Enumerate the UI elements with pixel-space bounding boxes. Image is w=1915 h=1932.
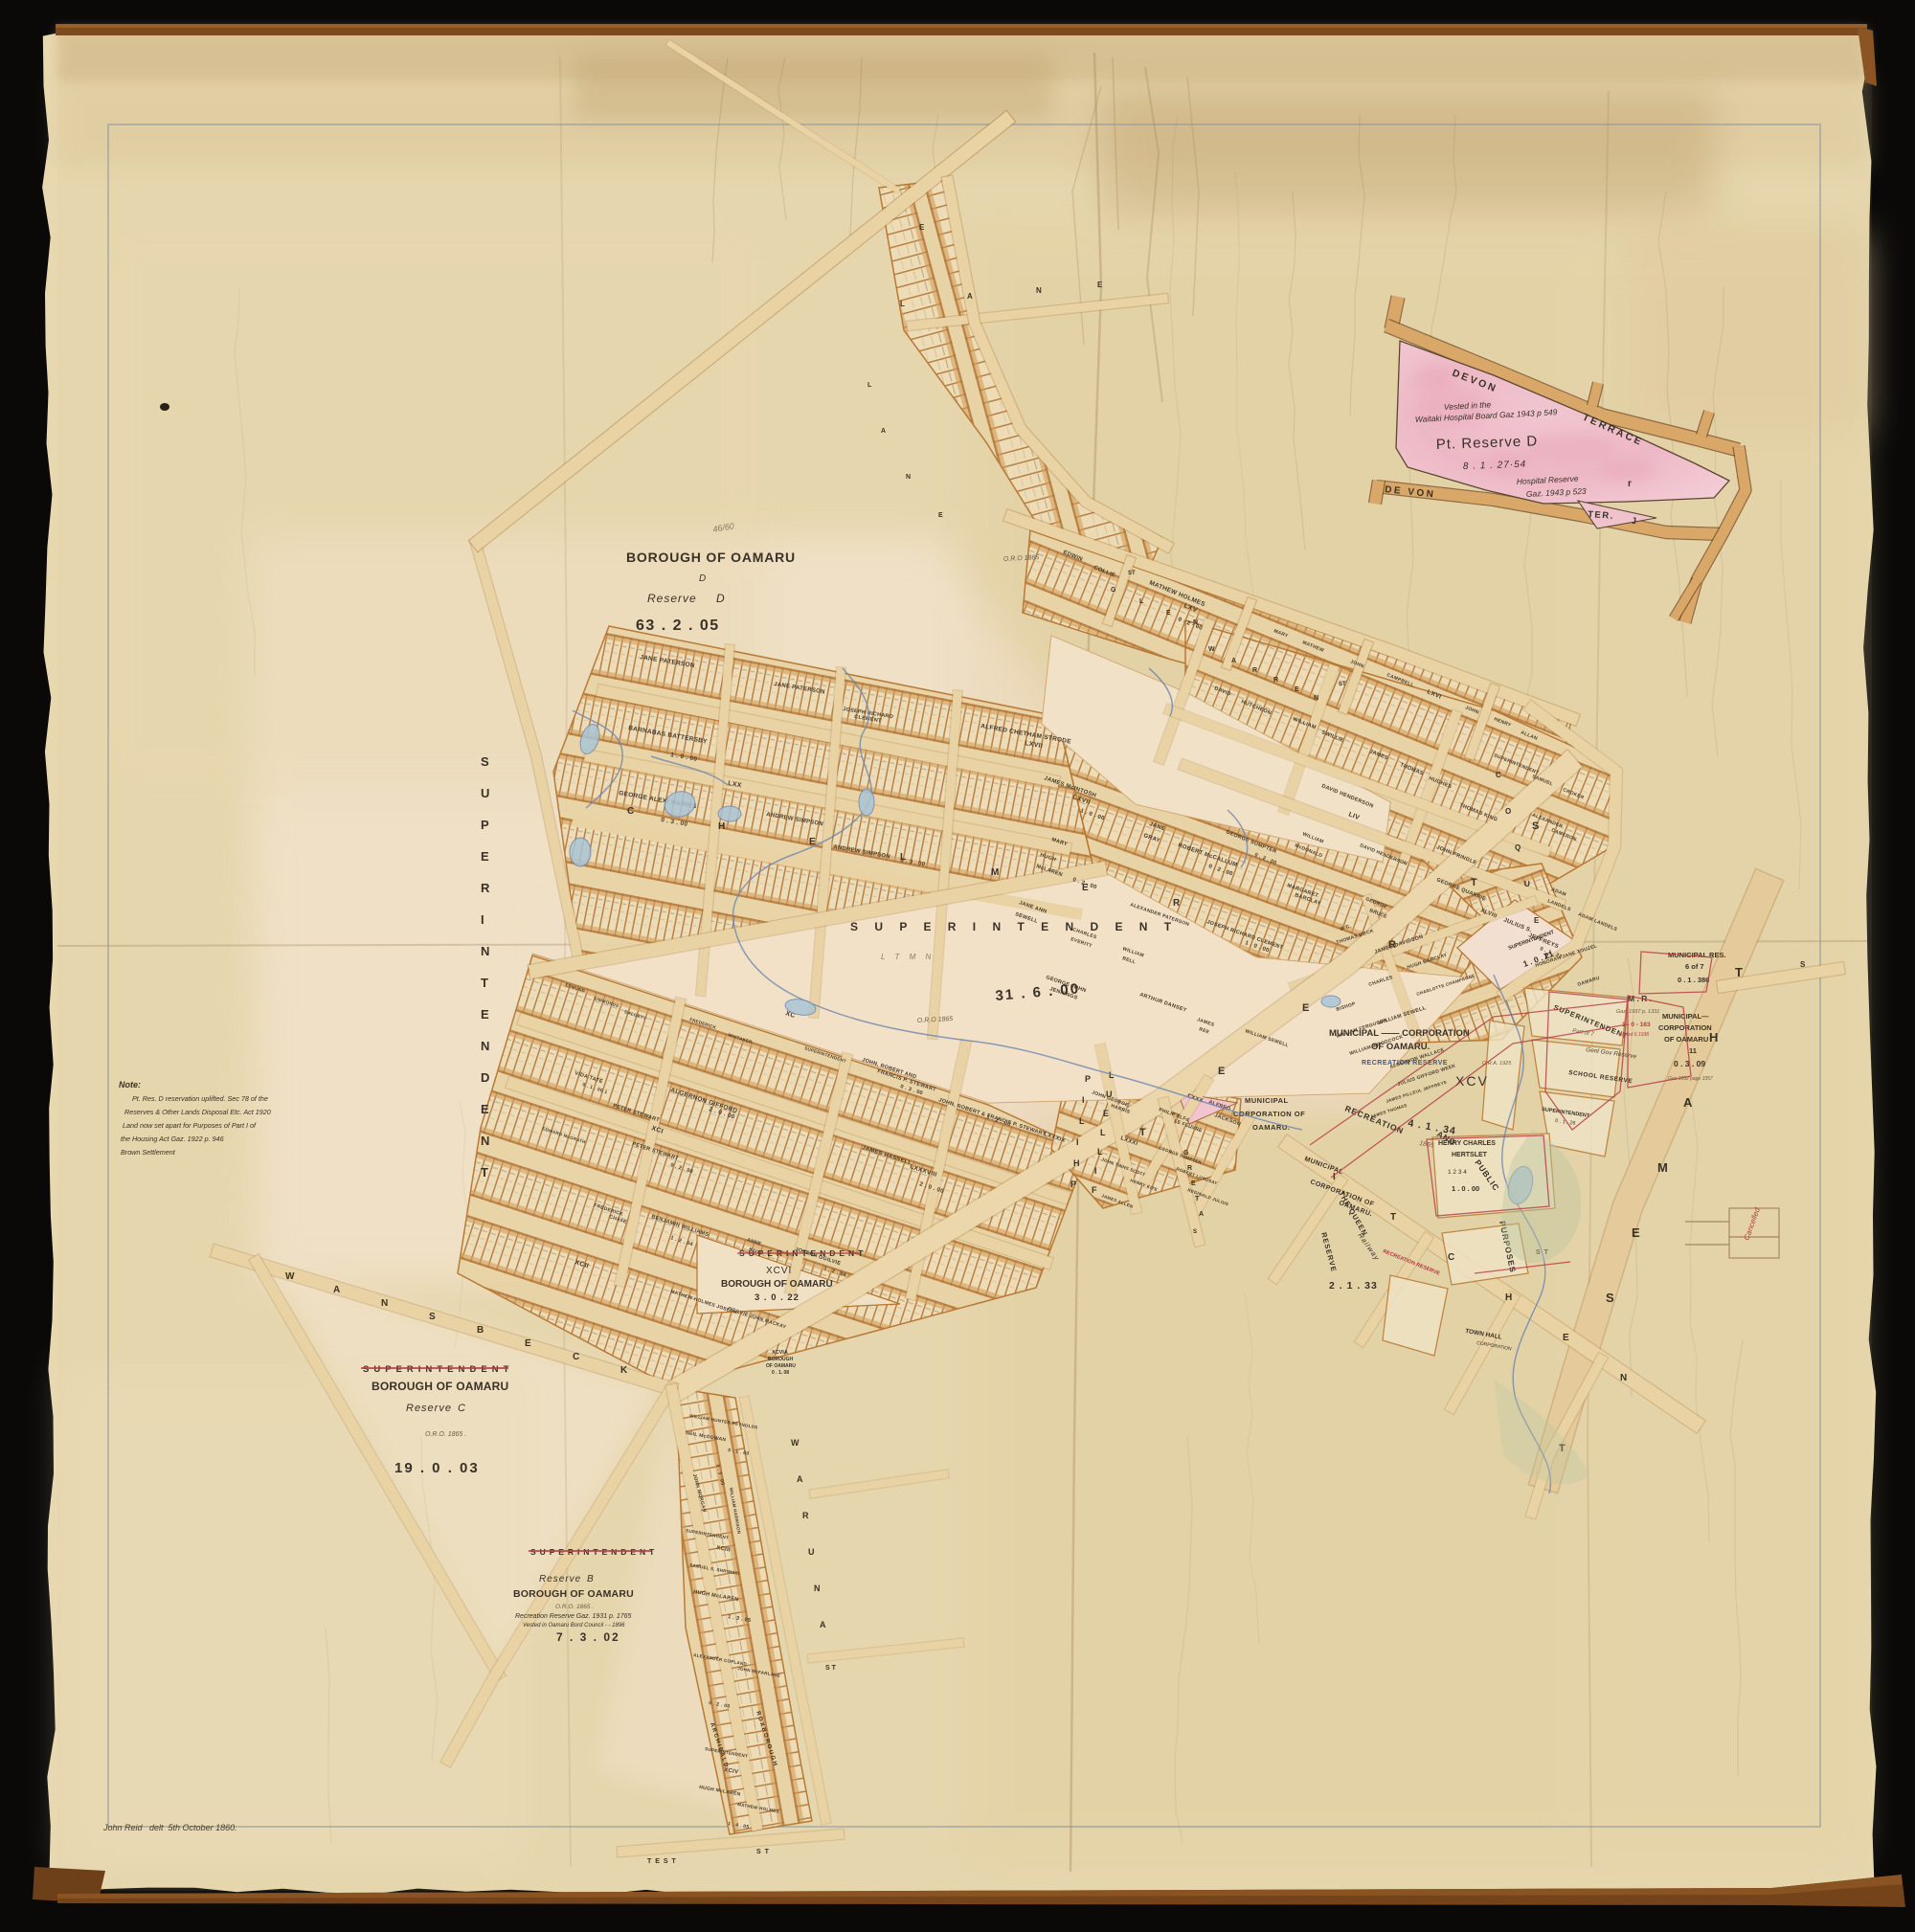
svg-text:E: E: [1097, 281, 1103, 289]
svg-text:S T: S T: [825, 1665, 837, 1672]
svg-text:L T M N: L T M N: [881, 953, 935, 961]
svg-text:S: S: [1800, 960, 1806, 969]
svg-text:2 . 1 . 33: 2 . 1 . 33: [1329, 1280, 1378, 1292]
svg-text:U: U: [808, 1547, 815, 1557]
svg-text:A: A: [820, 1620, 826, 1629]
svg-text:A: A: [797, 1474, 803, 1484]
svg-text:P: P: [1070, 1179, 1076, 1189]
svg-text:H: H: [718, 821, 725, 832]
svg-text:E: E: [525, 1338, 531, 1349]
svg-text:Brown Settlement: Brown Settlement: [121, 1148, 176, 1157]
svg-text:S U P E R I N T E N D E N T: S U P E R I N T E N D E N T: [850, 920, 1178, 933]
svg-text:O.R.O. 1865 .: O.R.O. 1865 .: [555, 1604, 594, 1610]
svg-text:D: D: [716, 592, 725, 605]
svg-text:1 2 3 4: 1 2 3 4: [1448, 1169, 1467, 1176]
svg-text:L: L: [1139, 598, 1144, 605]
svg-text:S: S: [481, 754, 489, 769]
svg-text:G: G: [1111, 587, 1116, 594]
svg-text:C: C: [573, 1352, 579, 1362]
svg-text:E: E: [1218, 1066, 1225, 1077]
svg-text:I: I: [1094, 1166, 1097, 1176]
svg-text:C: C: [458, 1403, 465, 1414]
svg-text:W: W: [1208, 646, 1215, 653]
svg-text:r: r: [1628, 479, 1632, 489]
svg-text:K: K: [620, 1365, 628, 1376]
svg-text:U: U: [1524, 880, 1530, 888]
svg-text:W: W: [285, 1271, 295, 1282]
svg-text:XCVIA: XCVIA: [772, 1350, 788, 1356]
svg-text:A: A: [881, 428, 886, 435]
svg-text:Land now set apart for Purpose: Land now set apart for Purposes of Part …: [123, 1121, 257, 1130]
svg-text:63 . 2 . 05: 63 . 2 . 05: [636, 618, 720, 634]
svg-text:N: N: [1036, 286, 1042, 295]
svg-text:0 . 1. 08: 0 . 1. 08: [772, 1370, 789, 1376]
svg-text:I: I: [1076, 1137, 1079, 1147]
svg-text:ST: ST: [1339, 682, 1346, 687]
svg-text:1 . 0 . 00: 1 . 0 . 00: [1452, 1184, 1479, 1193]
svg-text:N: N: [481, 944, 489, 958]
svg-text:E: E: [1534, 916, 1540, 925]
svg-text:E: E: [481, 1102, 489, 1116]
svg-text:T: T: [1471, 877, 1477, 888]
svg-text:XCV: XCV: [1455, 1073, 1489, 1089]
svg-text:T: T: [481, 1165, 488, 1179]
svg-text:BOROUGH OF OAMARU: BOROUGH OF OAMARU: [721, 1279, 833, 1290]
svg-text:N: N: [1314, 695, 1318, 702]
svg-text:R: R: [1173, 898, 1181, 909]
svg-text:Reserves & Other Lands Dispos: Reserves & Other Lands Disposal Etc. Act…: [124, 1108, 271, 1116]
svg-text:L: L: [900, 300, 905, 308]
svg-text:C: C: [1448, 1252, 1454, 1263]
svg-text:S: S: [1532, 820, 1539, 832]
svg-text:T: T: [1195, 1196, 1200, 1202]
svg-text:H: H: [1073, 1158, 1080, 1168]
svg-text:MUNICIPAL—: MUNICIPAL—: [1662, 1012, 1709, 1021]
svg-text:Pt. Res. D reservation uplifte: Pt. Res. D reservation uplifted. Sec 78 …: [132, 1094, 268, 1103]
svg-text:E: E: [481, 849, 489, 864]
svg-text:N: N: [1620, 1373, 1627, 1383]
svg-text:0 . 1 . 386: 0 . 1 . 386: [1678, 976, 1709, 984]
svg-text:S T: S T: [756, 1849, 770, 1855]
svg-text:Note:: Note:: [119, 1080, 141, 1090]
svg-text:Recreation Reserve Gaz. 1931 p: Recreation Reserve Gaz. 1931 p. 1765: [515, 1613, 632, 1620]
svg-text:E: E: [481, 1007, 489, 1022]
svg-text:7 . 3 . 02: 7 . 3 . 02: [556, 1630, 620, 1644]
svg-text:U: U: [481, 786, 489, 800]
svg-text:A: A: [333, 1285, 340, 1295]
svg-text:R: R: [1252, 667, 1257, 674]
svg-text:ST: ST: [1128, 571, 1136, 576]
svg-text:19 . 0 . 03: 19 . 0 . 03: [394, 1460, 480, 1476]
svg-text:Vested 6.1938: Vested 6.1938: [1618, 1032, 1649, 1038]
svg-text:B: B: [587, 1574, 594, 1584]
svg-text:E: E: [1563, 1333, 1569, 1343]
svg-text:BOROUGH OF OAMARU: BOROUGH OF OAMARU: [513, 1588, 634, 1600]
svg-text:Reserve: Reserve: [647, 592, 697, 605]
svg-text:OF OAMARU: OF OAMARU: [766, 1363, 796, 1369]
svg-text:I: I: [481, 912, 484, 927]
svg-text:BOROUGH OF OAMARU: BOROUGH OF OAMARU: [626, 550, 796, 565]
svg-text:T E S T: T E S T: [647, 1858, 677, 1865]
svg-text:M: M: [991, 867, 999, 878]
svg-text:E: E: [1295, 686, 1299, 693]
svg-text:F: F: [1092, 1185, 1097, 1195]
svg-text:BOROUGH OF OAMARU: BOROUGH OF OAMARU: [372, 1380, 508, 1393]
svg-text:R: R: [1273, 677, 1278, 684]
svg-text:E: E: [919, 223, 925, 232]
svg-text:L: L: [1097, 1147, 1103, 1157]
svg-text:Vested in Oamaru Bord Council: Vested in Oamaru Bord Council - - 1896: [523, 1623, 625, 1629]
svg-text:Reserve: Reserve: [406, 1403, 452, 1414]
svg-text:A: A: [1683, 1095, 1693, 1110]
svg-text:N: N: [906, 474, 911, 481]
svg-text:C: C: [1496, 771, 1501, 779]
svg-text:S: S: [1193, 1229, 1197, 1235]
svg-text:E: E: [1302, 1002, 1309, 1014]
svg-text:S: S: [429, 1312, 436, 1322]
svg-text:R: R: [481, 881, 490, 895]
svg-text:T: T: [1390, 1212, 1396, 1223]
svg-text:A: A: [1231, 658, 1236, 664]
svg-text:N: N: [814, 1584, 821, 1593]
svg-text:I: I: [1082, 1095, 1085, 1105]
svg-text:6 of 7: 6 of 7: [1685, 962, 1704, 971]
svg-text:O.R.O. 1865 .: O.R.O. 1865 .: [425, 1431, 466, 1438]
svg-text:N: N: [481, 1134, 489, 1148]
svg-text:E: E: [1191, 1180, 1196, 1187]
svg-text:TER.: TER.: [1588, 509, 1614, 522]
svg-text:Reserve: Reserve: [539, 1574, 581, 1584]
svg-text:Q: Q: [1515, 843, 1521, 852]
svg-text:R: R: [802, 1511, 809, 1520]
svg-text:M: M: [1657, 1160, 1668, 1175]
svg-text:S U P E R I N T E N D E N T: S U P E R I N T E N D E N T: [363, 1364, 510, 1375]
svg-text:John Reid delt 5th October: John Reid delt 5th October 1860.: [102, 1823, 237, 1832]
svg-text:N: N: [481, 1039, 489, 1053]
svg-text:J: J: [1632, 516, 1636, 526]
svg-text:L: L: [1079, 1116, 1085, 1126]
svg-text:T: T: [1139, 1127, 1146, 1138]
svg-text:O: O: [1505, 807, 1511, 816]
svg-text:P: P: [1085, 1074, 1091, 1084]
svg-text:11: 11: [1689, 1046, 1697, 1055]
svg-text:T: T: [1735, 965, 1743, 979]
svg-text:Gaz. 1937 p. 1331: Gaz. 1937 p. 1331: [1616, 1009, 1659, 1015]
svg-text:H: H: [1505, 1292, 1512, 1303]
svg-text:E: E: [1632, 1225, 1640, 1240]
svg-text:L: L: [1100, 1128, 1106, 1137]
svg-text:A: A: [1199, 1211, 1204, 1218]
svg-text:C: C: [627, 806, 634, 817]
svg-text:HENRY CHARLES: HENRY CHARLES: [1438, 1140, 1496, 1147]
svg-text:T: T: [481, 976, 488, 990]
svg-text:B: B: [477, 1325, 484, 1336]
svg-text:P: P: [481, 818, 489, 832]
svg-text:D: D: [481, 1070, 489, 1085]
svg-text:MUNICIPAL: MUNICIPAL: [1245, 1096, 1289, 1105]
svg-text:H: H: [1709, 1030, 1718, 1045]
svg-text:I: I: [1333, 1172, 1336, 1182]
svg-text:E: E: [1166, 610, 1171, 617]
svg-text:8 . 1 . 27·54: 8 . 1 . 27·54: [1463, 460, 1527, 472]
svg-text:S: S: [1606, 1291, 1614, 1305]
svg-text:A: A: [967, 292, 973, 301]
svg-text:W: W: [791, 1438, 800, 1448]
svg-text:E: E: [1103, 1109, 1109, 1118]
svg-text:the Housing Act Gaz. 1922 p.: the Housing Act Gaz. 1922 p. 946: [121, 1134, 224, 1143]
svg-text:BOROUGH: BOROUGH: [768, 1357, 794, 1362]
svg-text:E: E: [938, 512, 943, 519]
svg-text:L: L: [867, 382, 872, 389]
svg-text:N: N: [381, 1298, 388, 1309]
svg-text:XCVI: XCVI: [766, 1266, 792, 1276]
svg-text:D: D: [699, 573, 706, 584]
svg-text:OAMARU.: OAMARU.: [1252, 1123, 1290, 1132]
svg-text:HERTSLET: HERTSLET: [1452, 1152, 1488, 1158]
svg-text:O.R.A. 1925: O.R.A. 1925: [1482, 1061, 1512, 1067]
svg-text:3 . 0 . 22: 3 . 0 . 22: [755, 1292, 800, 1303]
